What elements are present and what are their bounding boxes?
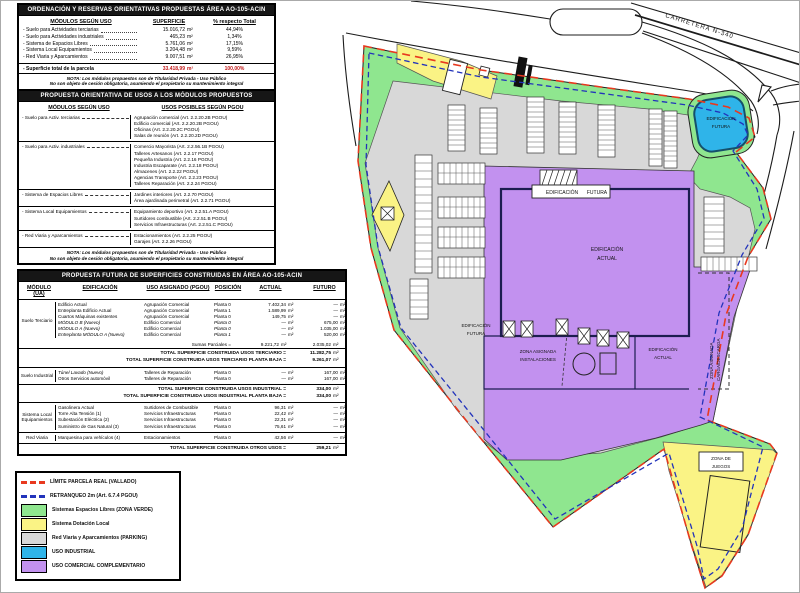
label-edificacion-futura-left: FUTURA [467, 331, 485, 336]
gas-kiosk [479, 66, 490, 77]
col-header: % respecto Total [199, 19, 270, 25]
legend-item: USO COMERCIAL COMPLEMENTARIO [21, 561, 175, 572]
cell: TOTAL SUPERFICIE CONSTRUIDA USOS INDUSTR… [19, 387, 292, 394]
legend-label: Red Viaria y Aparcamientos (PARKING) [52, 536, 147, 541]
cell: 2.035,02 [292, 342, 331, 347]
sumas-parciales-row: Sumas Parciales = 9.221,72 m² 2.035,02 m… [19, 340, 345, 348]
cell: Planta 0 [214, 424, 244, 430]
cell: — [244, 332, 286, 338]
retranqueo-line-sample [21, 495, 45, 498]
col-header: MÓDULOS SEGÚN USO [23, 19, 139, 25]
cell: m² [286, 435, 299, 441]
table-row: - Sistema de Espacios Libres Jardines in… [19, 189, 274, 206]
cell: Servicios Infraestructuras [144, 424, 214, 430]
col-header: POSICIÓN [213, 285, 243, 297]
table1-title: ORDENACIÓN Y RESERVAS ORIENTATIVAS PROPU… [19, 5, 274, 16]
cell: m² [279, 342, 292, 347]
total-row: TOTAL SUPERFICIE CONSTRUIDA USOS INDUSTR… [19, 394, 345, 401]
parking-row [559, 102, 576, 154]
table1-column-headers: MÓDULOS SEGÚN USO SUPERFICIE % respecto … [19, 16, 274, 27]
label-edificacion-actual-right: EDIFICACIÓN [648, 346, 677, 352]
cell: 334,00 [292, 387, 331, 394]
group-terciario: Suelo Terciario Edificio Actual Agrupaci… [19, 299, 345, 340]
cell: Estacionamientos [144, 435, 214, 441]
cell: 9.221,72 [237, 342, 279, 347]
table-row: - Sistema de Espacios Libres 5.761,06 m²… [19, 41, 274, 48]
table-row: - Suelo para Actividades terciarias 15.0… [19, 27, 274, 34]
cell: 9.261,07 [292, 358, 331, 365]
cell: - Suelo para Activ. industriales [22, 144, 130, 187]
col-header: EDIFICACIÓN [57, 285, 143, 297]
parking-row [598, 105, 615, 157]
module-label: Suelo Terciario [19, 318, 55, 323]
group-industrial: Suelo Industrial Túnel Lavado (Nuevo) Ta… [19, 367, 345, 384]
cell: 9.007,51 [139, 54, 185, 61]
cell: m² [286, 376, 299, 382]
cell: Comercio Mayorista (Art. 2.2.56.1B PGOU)… [130, 144, 271, 187]
module-label: Sistema Local Equipamientos [19, 412, 55, 422]
table2-title: PROPUESTA ORIENTATIVA DE USOS A LOS MÓDU… [19, 91, 274, 102]
cell: m² [185, 66, 199, 73]
cell: 33.418,99 [139, 66, 185, 73]
parking-row [649, 109, 662, 166]
legend: LÍMITE PARCELA REAL (VALLADO) RETRANQUEO… [15, 471, 181, 581]
cell: 167,00 [299, 376, 338, 382]
parking-row [448, 105, 465, 151]
note-line: No son objeto de cesión obligatoria, asu… [21, 81, 272, 87]
cell: Otros Servicios automóvil [58, 376, 144, 382]
legend-item: Sistemas Espacios Libres (ZONA VERDE) [21, 505, 175, 516]
cell: m² [185, 34, 199, 41]
uso-item: Salas de reunión (Art. 2.2.20.2D PGOU) [134, 133, 271, 139]
table-row: - Red Viaria y Aparcamientos Estacionami… [19, 230, 274, 247]
table3-title: PROPUESTA FUTURA DE SUPERFICIES CONSTRUI… [19, 271, 345, 282]
uso-comercial-swatch [21, 560, 47, 573]
table-row: - Suelo para Activ. terciarias Agrupació… [19, 113, 274, 141]
cell: 5.761,06 [139, 41, 185, 48]
parking-comb [410, 279, 428, 319]
cell: 42,56 [244, 435, 286, 441]
cell: 3.204,48 [139, 47, 185, 54]
cell: Suministro de Gas Natural (3) [58, 424, 144, 430]
legend-label: USO INDUSTRIAL [52, 550, 95, 555]
label-zona-instalaciones: ZONA ASIGNADA [520, 349, 557, 354]
table-row: Suministro de Gas Natural (3) Servicios … [56, 424, 352, 430]
cell: 1,34% [199, 34, 270, 41]
cell: Planta 0 [214, 435, 244, 441]
cell: m² [185, 47, 199, 54]
table-total-row: - Superficie total de la parcela 33.418,… [19, 63, 274, 73]
label-zona-carga: CARGA/DESCARGA [716, 338, 721, 381]
parking-row [438, 227, 485, 248]
cell: m² [185, 27, 199, 34]
cell: — [299, 424, 338, 430]
label-edificacion-futura-left: EDIFICACIÓN [461, 322, 490, 328]
cell: 44,94% [199, 27, 270, 34]
torre-alta-tension-symbol [381, 207, 394, 220]
legend-item: Red Viaria y Aparcamientos (PARKING) [21, 533, 175, 544]
legend-item: Sistema Dotación Local [21, 519, 175, 530]
cell: Jardines interiores (Art. 2.2.70 PGOU) Á… [130, 192, 271, 204]
cell: TOTAL SUPERFICIE CONSTRUIDA USOS TERCIAR… [19, 358, 292, 365]
plan-sheet: ORDENACIÓN Y RESERVAS ORIENTATIVAS PROPU… [0, 0, 800, 593]
cell: Estacionamientos (Art. 2.2.25 PGOU) Gara… [130, 233, 271, 245]
col-header: MÓDULO (UA) [21, 285, 57, 297]
col-header: SUPERFICIE [139, 19, 199, 25]
cell: 75,61 [244, 424, 286, 430]
cell: - Superficie total de la parcela [23, 66, 139, 73]
cell: 259,21 [292, 446, 331, 453]
cell: - Suelo para Actividades terciarias [23, 27, 139, 34]
cell: - Red Viaria y Aparcamientos [23, 54, 139, 61]
cell: m² [286, 424, 299, 430]
table2-note: NOTA: Los módulos propuestos son de Titu… [19, 247, 274, 263]
col-header: USOS POSIBLES SEGÚN PGOU [135, 105, 270, 111]
uso-item: Servicios Infraestructuras (Art. 2.2.51.… [134, 222, 271, 228]
table-row: - Suelo para Actividades industriales 46… [19, 34, 274, 41]
cell: - Sistema Local Equipamientos [23, 47, 139, 54]
parking-row [438, 163, 485, 184]
label-edificacion-futura-industrial: FUTURA [712, 124, 730, 129]
cell: — [299, 435, 338, 441]
parking-row [701, 257, 757, 271]
table2-column-headers: MÓDULOS SEGÚN USO USOS POSIBLES SEGÚN PG… [19, 102, 274, 113]
cell: Talleres de Reparación [144, 376, 214, 382]
cell: Planta 1 [214, 332, 244, 338]
legend-label: USO COMERCIAL COMPLEMENTARIO [52, 564, 145, 569]
legend-item: LÍMITE PARCELA REAL (VALLADO) [21, 477, 175, 488]
table1-note: NOTA: Los módulos propuestos son de Titu… [19, 73, 274, 89]
label-edificacion-futura-boxed: FUTURA [587, 190, 608, 196]
group-red-viaria: Red Viaria Marquesina para vehículos (4)… [19, 432, 345, 443]
limite-parcela-line-sample [21, 481, 45, 484]
module-label: Red Viaria [19, 435, 55, 440]
uso-item: Garajes (Art. 2.2.26 PGOU) [134, 239, 271, 245]
cell: m² [185, 41, 199, 48]
label-zona-carga: ZONA ASIGNADA [709, 342, 714, 379]
table-ordenacion-reservas: ORDENACIÓN Y RESERVAS ORIENTATIVAS PROPU… [17, 3, 276, 91]
cell: Equipamiento deportivo (Art. 2.2.51.A PG… [130, 209, 271, 227]
totals-otros: TOTAL SUPERFICIE CONSTRUIDA OTROS USOS =… [19, 443, 345, 455]
cell: m² [286, 332, 299, 338]
cell: Entreplanta MÓDULO A (Nuevo) [58, 332, 144, 338]
label-zona-juegos: JUEGOS [712, 464, 731, 469]
table-row: - Suelo para Activ. industriales Comerci… [19, 141, 274, 189]
site-plan-map: CARRETERA N-340 [341, 1, 800, 593]
table-row: Marquesina para vehículos (4) Estacionam… [56, 435, 352, 441]
legend-label: LÍMITE PARCELA REAL (VALLADO) [50, 480, 136, 485]
label-edificacion-actual-right: ACTUAL [654, 355, 672, 360]
cell: 15.016,72 [139, 27, 185, 34]
table-row: - Red Viaria y Aparcamientos 9.007,51 m²… [19, 54, 274, 61]
parking-comb [415, 155, 432, 273]
legend-label: RETRANQUEO 2m (Art. 6.7.4 PGOU) [50, 494, 138, 499]
table3-column-headers: MÓDULO (UA) EDIFICACIÓN USO ASIGNADO (PG… [19, 282, 345, 299]
parking-row [664, 111, 677, 168]
total-row: TOTAL SUPERFICIE CONSTRUIDA USOS TERCIAR… [19, 358, 345, 365]
legend-label: Sistemas Espacios Libres (ZONA VERDE) [52, 508, 153, 513]
parking-row [438, 197, 485, 218]
table-superficies-construidas: PROPUESTA FUTURA DE SUPERFICIES CONSTRUI… [17, 269, 347, 456]
cell: Agrupación comercial (Art. 2.2.20.2B PGO… [130, 115, 271, 139]
cell: 334,00 [292, 394, 331, 401]
cell: 17,15% [199, 41, 270, 48]
totals-terciario: TOTAL SUPERFICIE CONSTRUIDA USOS TERCIAR… [19, 348, 345, 366]
hatched-future-strip [540, 170, 577, 185]
col-header: USO ASIGNADO (PGOU) [143, 285, 213, 297]
zona-verde-swatch [21, 504, 47, 517]
legend-item: RETRANQUEO 2m (Art. 6.7.4 PGOU) [21, 491, 175, 502]
cell: - Sistema Local Equipamientos [22, 209, 130, 227]
table-row: Otros Servicios automóvil Talleres de Re… [56, 376, 352, 382]
parking-row [480, 108, 497, 154]
cell: - Sistema de Espacios Libres [23, 41, 139, 48]
label-zona-instalaciones: INSTALACIONES [520, 357, 556, 362]
parking-row [438, 257, 485, 278]
label-zona-juegos: ZONA DE [711, 456, 731, 461]
parking-row [527, 97, 544, 153]
parking-comb [704, 197, 724, 253]
col-header: MÓDULOS SEGÚN USO [23, 105, 135, 111]
cell: Edificio Comercial [144, 332, 214, 338]
cell: 520,00 [299, 332, 338, 338]
col-header: ACTUAL [243, 285, 298, 297]
total-row: TOTAL SUPERFICIE CONSTRUIDA USOS INDUSTR… [19, 387, 345, 394]
cell: 465,23 [139, 34, 185, 41]
module-label: Suelo Industrial [19, 373, 55, 378]
label-edificacion-futura-boxed: EDIFICACIÓN [546, 189, 579, 196]
cell: TOTAL SUPERFICIE CONSTRUIDA USOS INDUSTR… [19, 394, 292, 401]
cell: - Suelo para Activ. terciarias [22, 115, 130, 139]
cell: Marquesina para vehículos (4) [58, 435, 144, 441]
total-row: TOTAL SUPERFICIE CONSTRUIDA OTROS USOS =… [19, 446, 345, 453]
cell: — [244, 376, 286, 382]
table-row: Entreplanta MÓDULO A (Nuevo) Edificio Co… [56, 332, 352, 338]
cell: 9,59% [199, 47, 270, 54]
label-edificacion-futura-industrial: EDIFICACIÓN [706, 115, 735, 121]
table-row: - Sistema Local Equipamientos 3.204,48 m… [19, 47, 274, 54]
cell: - Sistema de Espacios Libres [22, 192, 130, 204]
cell: 26,95% [199, 54, 270, 61]
uso-industrial-swatch [21, 546, 47, 559]
table-propuesta-usos: PROPUESTA ORIENTATIVA DE USOS A LOS MÓDU… [17, 89, 276, 265]
uso-item: Talleres Reparación (Art. 2.2.24 PGOU) [134, 181, 271, 187]
cell: - Red Viaria y Aparcamientos [22, 233, 130, 245]
cell: m² [185, 54, 199, 61]
cell: 100,00% [199, 66, 270, 73]
legend-label: Sistema Dotación Local [52, 522, 109, 527]
legend-item: USO INDUSTRIAL [21, 547, 175, 558]
label-edificacion-actual-main: ACTUAL [597, 256, 617, 262]
cell: - Suelo para Actividades industriales [23, 34, 139, 41]
cell: Sumas Parciales = [19, 342, 237, 347]
dotacion-local-swatch [21, 518, 47, 531]
red-viaria-swatch [21, 532, 47, 545]
group-equipamientos: Sistema Local Equipamientos Gasolinera A… [19, 402, 345, 431]
cell: TOTAL SUPERFICIE CONSTRUIDA OTROS USOS = [19, 446, 292, 453]
table-row: - Sistema Local Equipamientos Equipamien… [19, 206, 274, 229]
cell: Planta 0 [214, 376, 244, 382]
label-edificacion-actual-main: EDIFICACIÓN [591, 246, 624, 253]
totals-industrial: TOTAL SUPERFICIE CONSTRUIDA USOS INDUSTR… [19, 384, 345, 402]
note-line: No son objeto de cesión obligatoria, asu… [21, 256, 272, 262]
uso-item: Área ajardinada perimetral (Art. 2.2.71 … [134, 198, 271, 204]
